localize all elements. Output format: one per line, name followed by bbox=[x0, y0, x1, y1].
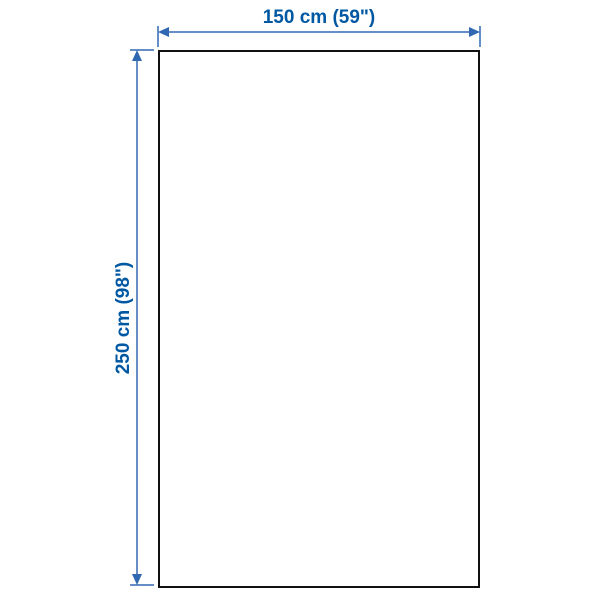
dimension-diagram: 150 cm (59") 250 cm (98") bbox=[0, 0, 600, 600]
arrow-up-icon bbox=[132, 50, 142, 61]
diagram-graphics bbox=[0, 0, 600, 600]
width-dimension-label: 150 cm (59") bbox=[219, 7, 419, 29]
width-dimension-line bbox=[158, 26, 480, 47]
height-dimension-label: 250 cm (98") bbox=[113, 218, 135, 418]
arrow-right-icon bbox=[469, 27, 480, 37]
product-outline-rect bbox=[159, 51, 479, 587]
arrow-down-icon bbox=[132, 574, 142, 585]
arrow-left-icon bbox=[158, 27, 169, 37]
